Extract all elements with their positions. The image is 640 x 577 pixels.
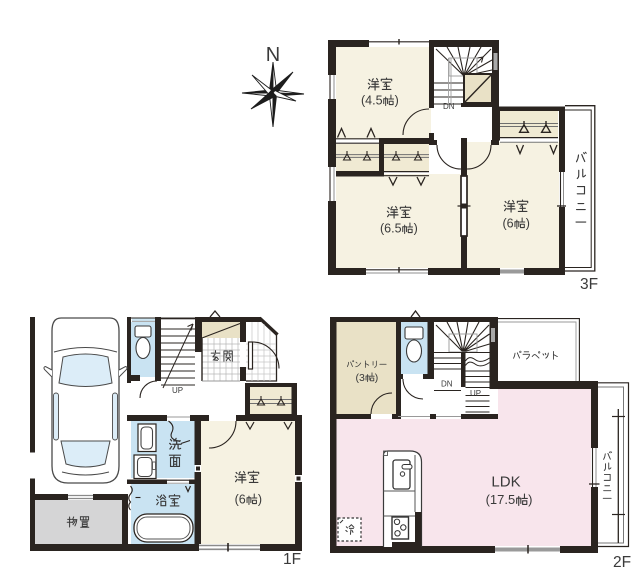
svg-text:UP: UP xyxy=(172,386,183,395)
svg-text:): ) xyxy=(395,94,399,108)
svg-text:): ) xyxy=(528,492,532,507)
svg-text:(6: (6 xyxy=(503,217,514,231)
svg-text:): ) xyxy=(414,222,418,236)
svg-text:LDK: LDK xyxy=(491,474,520,491)
svg-text:3F: 3F xyxy=(580,276,598,293)
svg-text:): ) xyxy=(375,372,379,384)
svg-text:(17.5: (17.5 xyxy=(486,492,516,507)
svg-text:(6.5: (6.5 xyxy=(380,222,402,236)
svg-text:1F: 1F xyxy=(283,551,301,568)
svg-text:(4.5: (4.5 xyxy=(361,94,383,108)
svg-text:DN: DN xyxy=(441,380,453,389)
svg-text:2F: 2F xyxy=(613,554,631,571)
svg-text:DN: DN xyxy=(443,102,455,111)
svg-text:(6: (6 xyxy=(235,493,246,507)
svg-text:UP: UP xyxy=(470,389,481,398)
svg-text:): ) xyxy=(526,217,530,231)
svg-text:): ) xyxy=(258,493,262,507)
svg-text:(3: (3 xyxy=(356,372,365,384)
